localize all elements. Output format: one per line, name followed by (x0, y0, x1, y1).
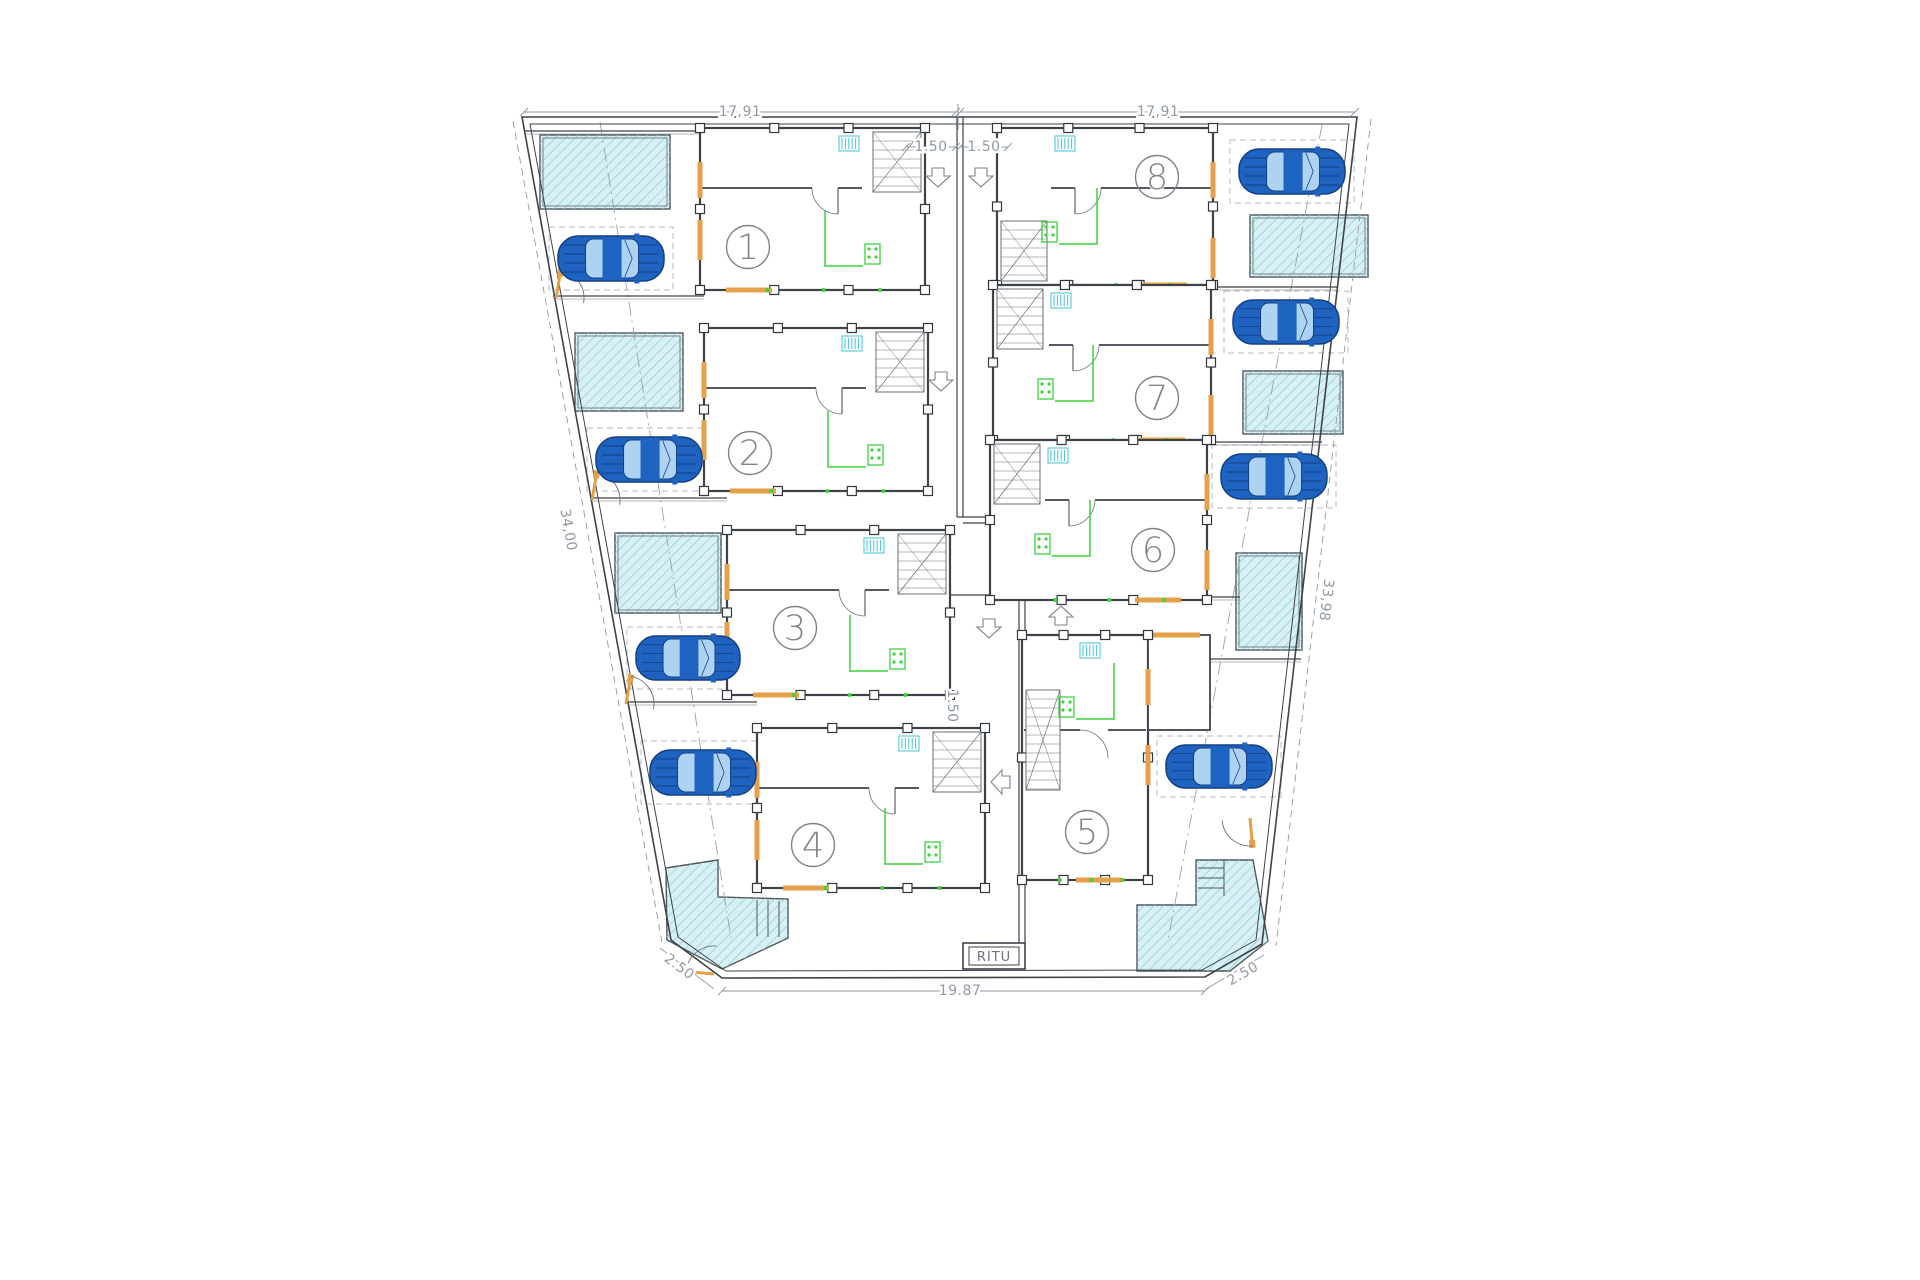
pool (540, 135, 670, 209)
car (1166, 743, 1272, 791)
unit-block-3: 3 (723, 526, 955, 700)
unit-block-6: 6 (986, 436, 1212, 605)
unit-block-7: 7 (989, 281, 1216, 445)
ritu-utility-box: RITU (963, 943, 1025, 969)
car (1239, 147, 1345, 197)
unit-number: 7 (1146, 379, 1168, 419)
dimension: 1.50 (944, 689, 960, 722)
dimension-label: 1.50 (944, 689, 960, 722)
dimension-label: 34,00 (556, 508, 579, 553)
dimension-label: 1.50 (967, 139, 1000, 155)
car (596, 435, 702, 485)
pool (575, 333, 683, 411)
pool (1236, 553, 1302, 650)
dimension-label: 17,91 (1137, 104, 1180, 120)
entry-arrow (929, 372, 953, 391)
pool (1250, 215, 1368, 277)
floor-plan-svg: 12348765 17,9117,911.501.5034,0033,981.5… (0, 0, 1920, 1280)
entry-arrow (1049, 606, 1073, 625)
car (636, 634, 740, 683)
dimension: 19.87 (718, 983, 1209, 999)
dimension-label: 33,98 (1315, 578, 1336, 622)
entry-arrow (969, 168, 993, 187)
ritu-label: RITU (977, 950, 1011, 965)
pool (1137, 860, 1268, 971)
unit-number: 4 (802, 826, 824, 866)
boundary-door (1222, 818, 1255, 851)
dimension-label: 19.87 (939, 983, 982, 999)
floor-plan-page: 12348765 17,9117,911.501.5034,0033,981.5… (0, 0, 1920, 1280)
pool (1243, 371, 1343, 434)
unit-number: 3 (784, 609, 806, 649)
unit-number: 6 (1142, 531, 1164, 571)
unit-number: 8 (1146, 158, 1168, 198)
car (1221, 452, 1327, 502)
car (1233, 298, 1339, 347)
unit-number: 5 (1076, 813, 1098, 853)
entry-arrow (926, 168, 950, 187)
car (558, 234, 664, 284)
unit-block-1: 1 (696, 124, 930, 295)
dimension-label: 17,91 (719, 104, 762, 120)
entry-arrow (977, 619, 1001, 638)
unit-block-2: 2 (700, 324, 933, 496)
unit-number: 2 (739, 434, 761, 474)
unit-block-4: 4 (753, 724, 990, 893)
entry-arrow (991, 770, 1010, 794)
unit-number: 1 (737, 228, 759, 268)
dimension-label: 1.50 (914, 139, 947, 155)
unit-block-8: 8 (993, 124, 1218, 290)
car (650, 748, 756, 798)
